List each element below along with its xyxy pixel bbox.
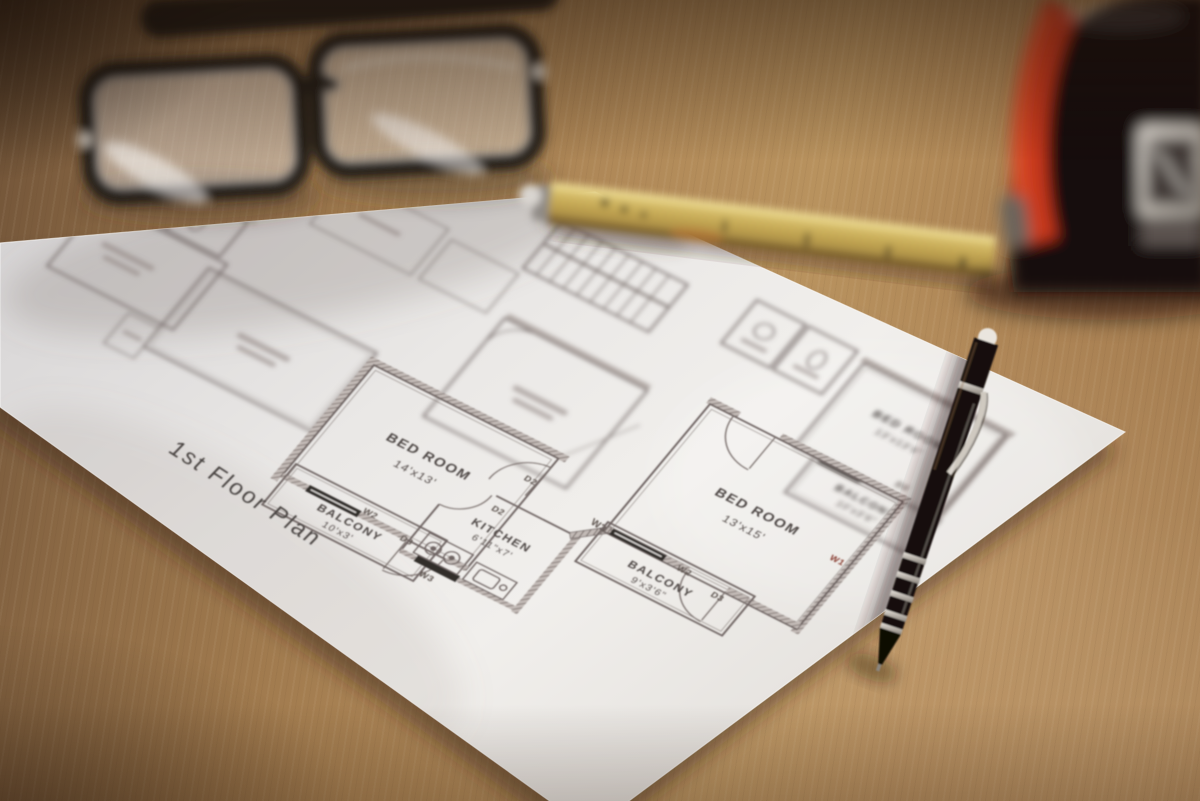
- photo-scene: BED ROOM 13'x13'6" D3 BALCONY 10'x3'6": [0, 0, 1200, 801]
- pencil-tip-shadow: [843, 648, 900, 688]
- right-hinge: [532, 66, 547, 78]
- left-hinge: [77, 133, 92, 145]
- left-lens: [86, 61, 304, 198]
- scene-drawing: BED ROOM 13'x13'6" D3 BALCONY 10'x3'6": [0, 0, 1200, 801]
- tape-measure: [965, 0, 1200, 320]
